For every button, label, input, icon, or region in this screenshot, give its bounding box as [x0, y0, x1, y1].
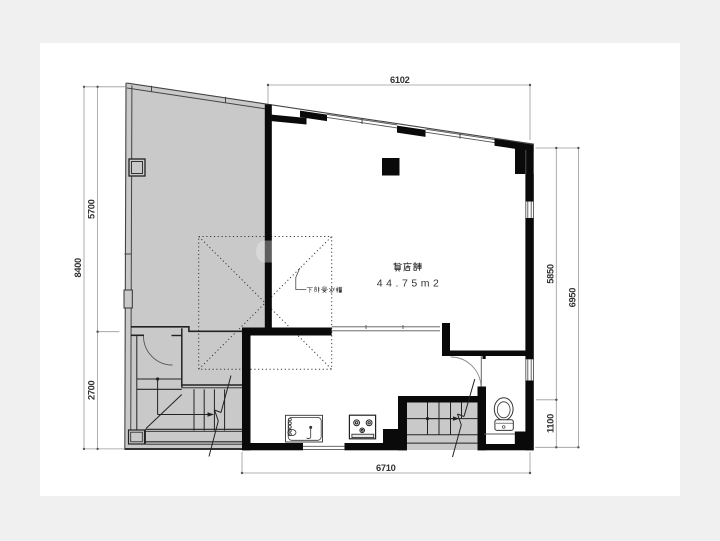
svg-text:1100: 1100 — [545, 414, 555, 433]
svg-text:5700: 5700 — [87, 199, 97, 219]
svg-text:6710: 6710 — [376, 463, 396, 473]
svg-text:6950: 6950 — [567, 288, 577, 308]
svg-text:8400: 8400 — [73, 258, 83, 278]
svg-text:6102: 6102 — [390, 75, 410, 85]
svg-text:5850: 5850 — [545, 264, 555, 284]
svg-text:2700: 2700 — [87, 380, 97, 400]
